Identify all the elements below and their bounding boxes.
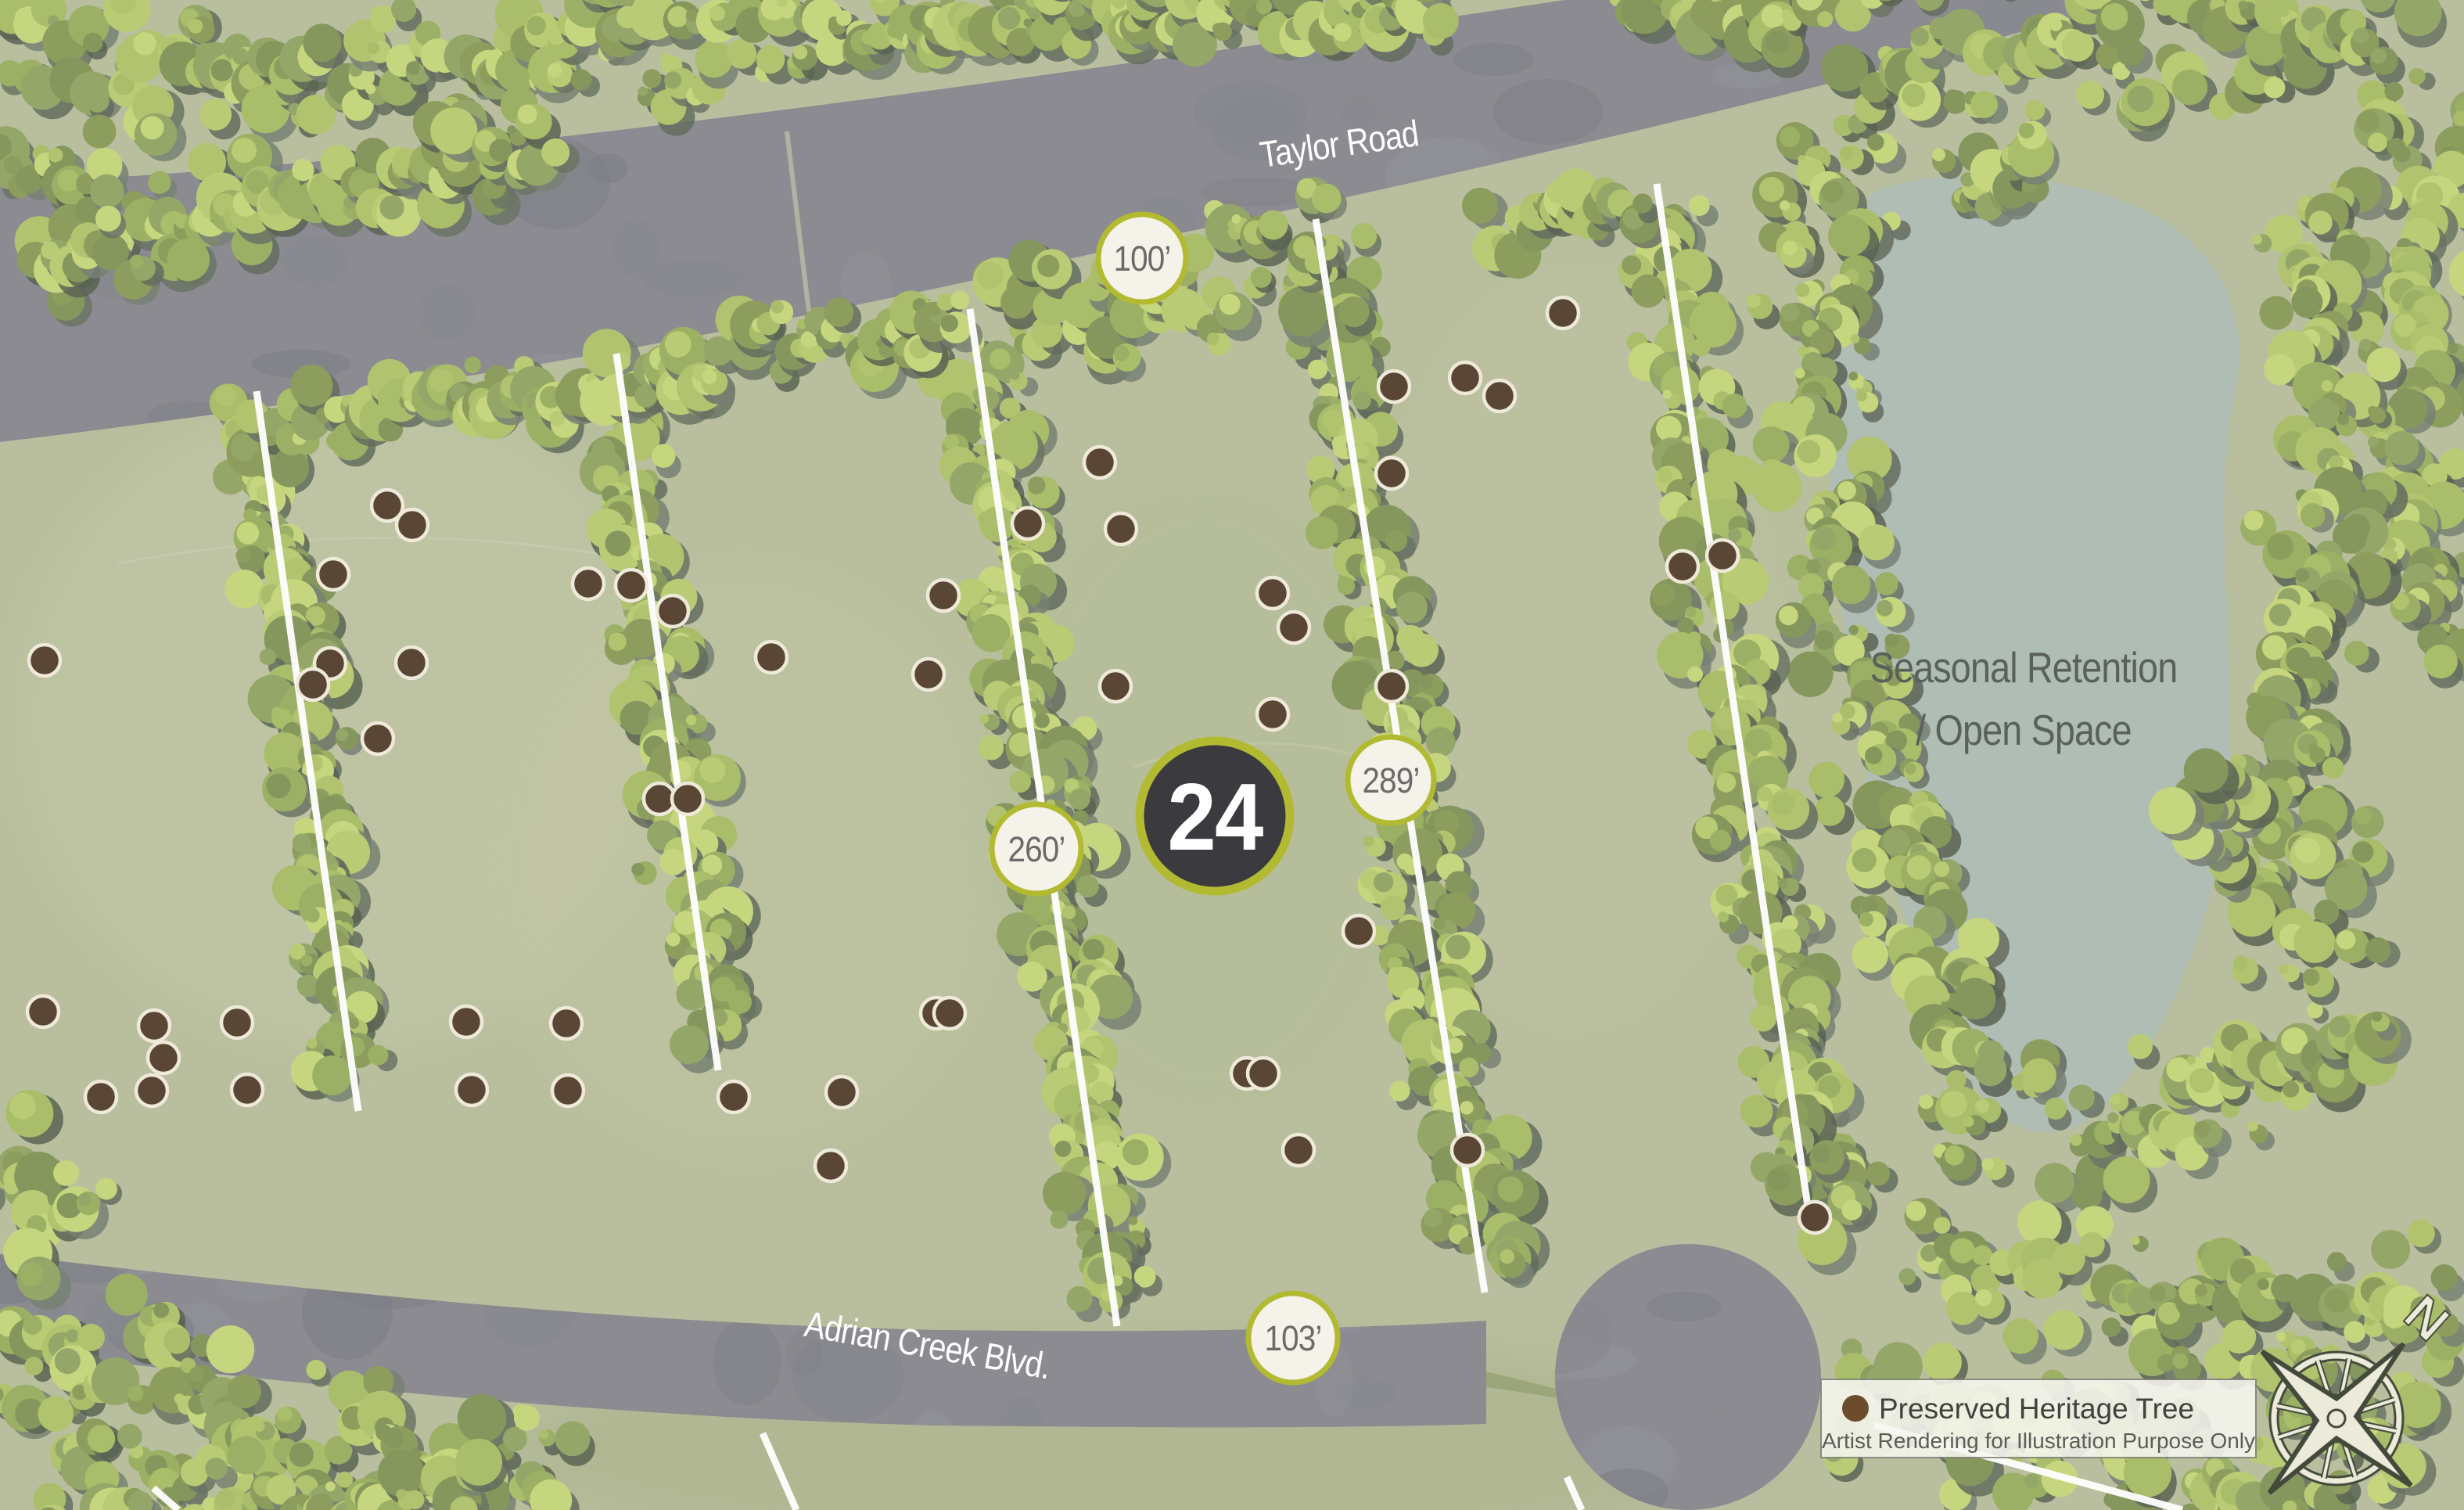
heritage-tree-dot bbox=[318, 559, 349, 590]
dimension-badge-right-value: 289’ bbox=[1363, 761, 1420, 800]
heritage-tree-legend-icon bbox=[1842, 1395, 1869, 1422]
open-space-label-line1: Seasonal Retention bbox=[1870, 643, 2178, 691]
heritage-tree-dot bbox=[672, 783, 703, 814]
dimension-badge-right: 289’ bbox=[1348, 737, 1434, 823]
heritage-tree-dot bbox=[1278, 612, 1309, 643]
heritage-tree-dot bbox=[1012, 508, 1043, 539]
heritage-tree-dot bbox=[1257, 577, 1288, 609]
heritage-tree-dot bbox=[934, 998, 965, 1029]
heritage-tree-dot bbox=[1376, 458, 1407, 489]
dimension-badge-bottom-value: 103’ bbox=[1265, 1319, 1322, 1358]
heritage-tree-dot bbox=[396, 647, 427, 678]
site-map: Seasonal Retention / Open Space Taylor R… bbox=[0, 0, 2464, 1510]
heritage-tree-dot bbox=[1084, 447, 1115, 478]
heritage-tree-dot bbox=[1667, 551, 1698, 582]
heritage-tree-dot bbox=[27, 996, 59, 1027]
heritage-tree-dot bbox=[718, 1081, 749, 1113]
heritage-tree-dot bbox=[297, 669, 329, 700]
heritage-tree-dot bbox=[85, 1081, 117, 1113]
heritage-tree-dot bbox=[1100, 671, 1131, 702]
heritage-tree-dot bbox=[573, 568, 604, 599]
heritage-tree-dot bbox=[362, 723, 393, 754]
heritage-tree-dot bbox=[616, 570, 647, 601]
heritage-tree-dot bbox=[1283, 1134, 1314, 1166]
heritage-tree-dot bbox=[1452, 1134, 1483, 1166]
heritage-tree-dot bbox=[551, 1008, 582, 1039]
heritage-tree-dot bbox=[1343, 915, 1374, 947]
heritage-tree-dot bbox=[138, 1010, 170, 1041]
heritage-tree-dot bbox=[913, 659, 944, 690]
heritage-tree-dot bbox=[1449, 362, 1481, 394]
heritage-tree-dot bbox=[1799, 1202, 1830, 1233]
dimension-badge-bottom: 103’ bbox=[1248, 1293, 1338, 1382]
heritage-tree-dot bbox=[136, 1075, 167, 1106]
heritage-tree-dot bbox=[1376, 671, 1407, 702]
lot-24-number: 24 bbox=[1167, 764, 1263, 870]
dimension-badge-top-value: 100’ bbox=[1114, 239, 1171, 279]
heritage-tree-dot bbox=[29, 645, 60, 676]
heritage-tree-dot bbox=[657, 595, 688, 627]
heritage-tree-dot bbox=[1378, 371, 1410, 402]
heritage-tree-dot bbox=[1707, 540, 1738, 571]
dimension-badge-left: 260’ bbox=[992, 804, 1081, 893]
heritage-tree-dot bbox=[1257, 699, 1288, 730]
heritage-tree-dot bbox=[756, 642, 787, 673]
heritage-tree-dot bbox=[148, 1042, 179, 1073]
legend-subtitle: Artist Rendering for Illustration Purpos… bbox=[1822, 1429, 2255, 1453]
heritage-tree-dot bbox=[451, 1006, 482, 1037]
legend: Preserved Heritage Tree Artist Rendering… bbox=[1821, 1379, 2256, 1458]
heritage-tree-dot bbox=[221, 1007, 253, 1038]
heritage-tree-dot bbox=[232, 1074, 263, 1106]
dimension-badge-top: 100’ bbox=[1098, 214, 1186, 302]
legend-title: Preserved Heritage Tree bbox=[1879, 1393, 2194, 1425]
open-space-label-line2: / Open Space bbox=[1916, 706, 2132, 753]
heritage-tree-dot bbox=[552, 1075, 584, 1106]
heritage-tree-dot bbox=[456, 1074, 487, 1106]
heritage-tree-dot bbox=[1547, 297, 1579, 329]
heritage-tree-dot bbox=[1484, 380, 1515, 412]
lot-24-marker[interactable]: 24 bbox=[1140, 741, 1290, 891]
heritage-tree-dot bbox=[815, 1150, 846, 1181]
heritage-tree-dot bbox=[1105, 513, 1137, 545]
heritage-tree-dot bbox=[826, 1077, 857, 1108]
heritage-tree-dot bbox=[397, 509, 428, 541]
heritage-tree-dot bbox=[928, 580, 959, 611]
site-map-stage: Seasonal Retention / Open Space Taylor R… bbox=[0, 0, 2464, 1510]
heritage-tree-dot bbox=[1248, 1058, 1279, 1089]
dimension-badge-left-value: 260’ bbox=[1008, 830, 1065, 869]
